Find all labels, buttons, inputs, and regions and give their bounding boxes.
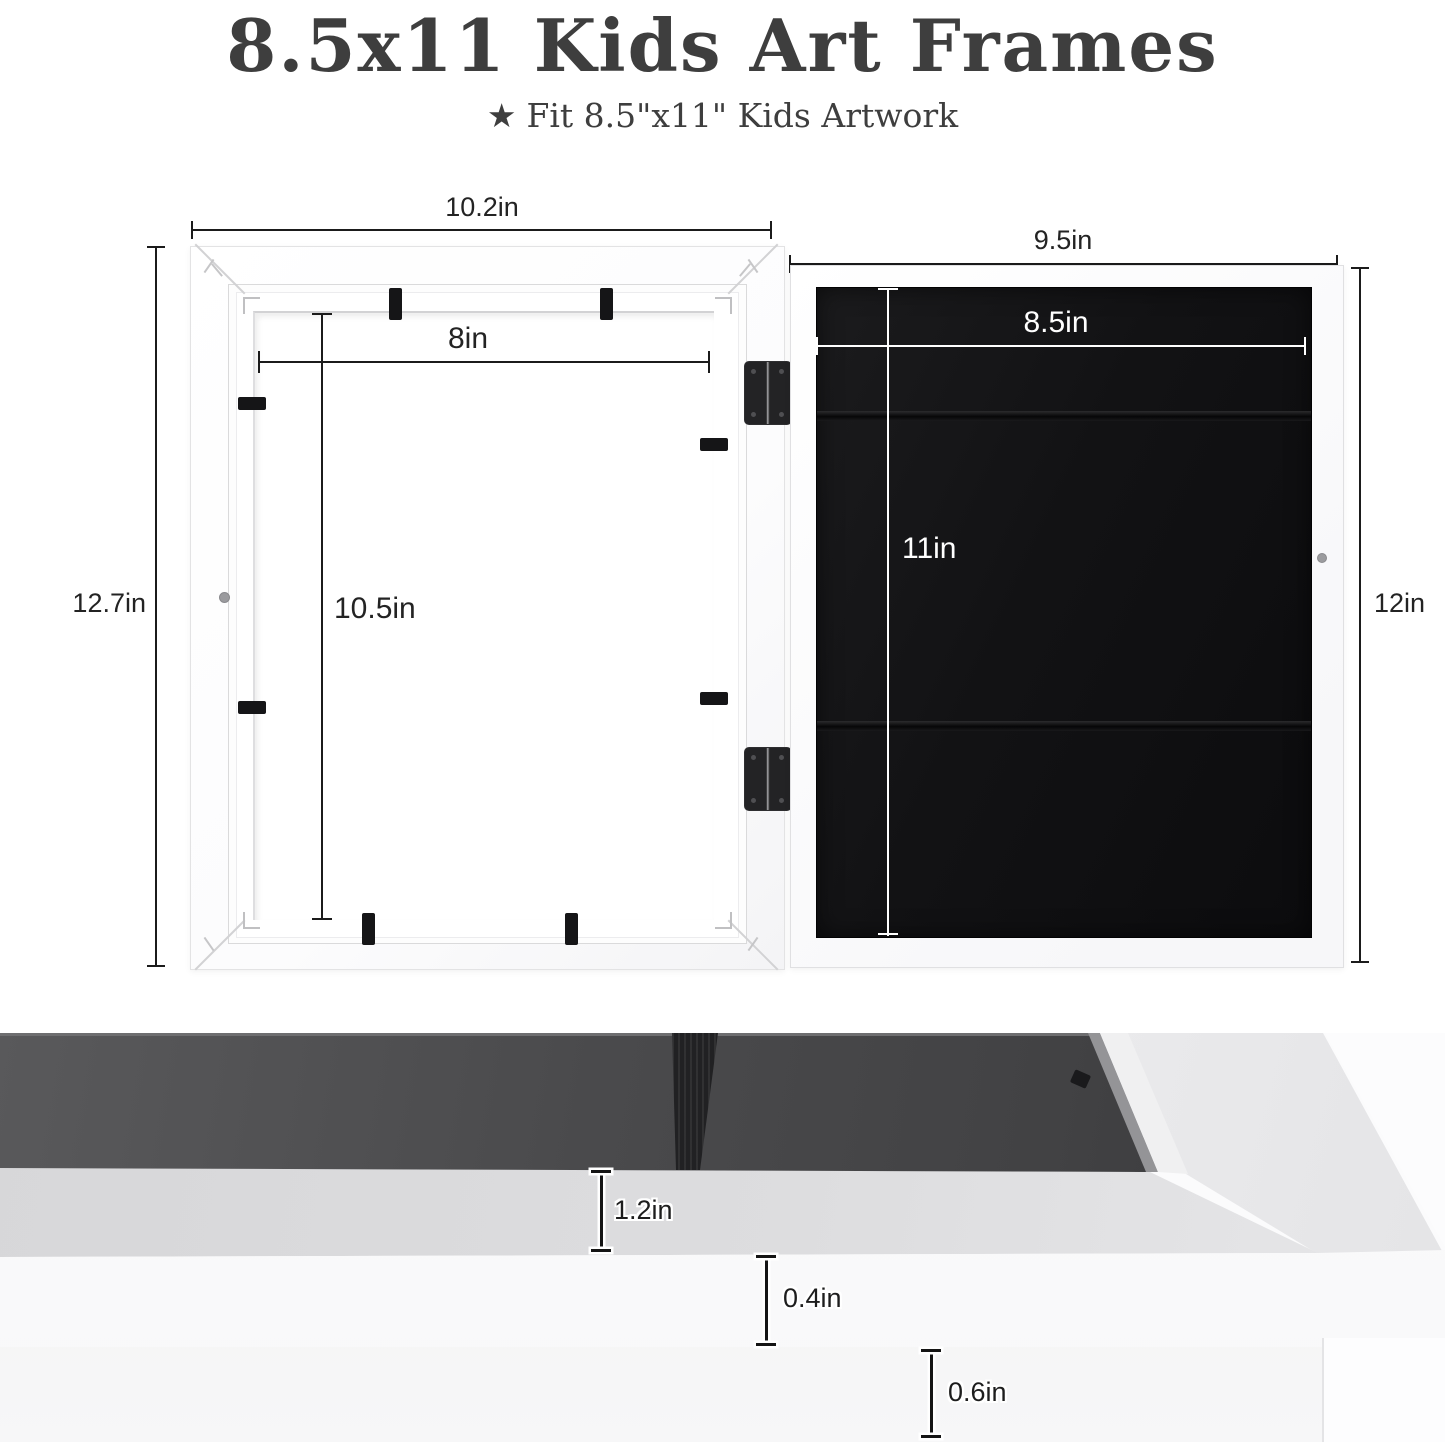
hinge-top — [745, 362, 791, 424]
elastic-band — [817, 411, 1311, 421]
retainer-clip — [238, 701, 266, 714]
retainer-clip — [389, 288, 402, 320]
corner-bracket-mark — [715, 912, 732, 929]
dim-line-back-art-height — [887, 288, 889, 936]
dim-tick — [921, 1435, 941, 1438]
retainer-clip — [565, 913, 578, 945]
dim-line-profile-edge — [930, 1351, 933, 1437]
dim-label-back-outer-height: 12in — [1374, 588, 1425, 619]
corner-bracket-mark — [715, 297, 732, 314]
retainer-clip — [238, 397, 266, 410]
hinge-screw — [779, 755, 784, 760]
corner-bracket-mark — [243, 912, 260, 929]
dim-tick — [921, 1349, 941, 1352]
dim-tick — [147, 246, 165, 248]
hinge-screw — [779, 798, 784, 803]
dim-tick — [816, 337, 818, 355]
profile-photo: 1.2in 0.4in 0.6in — [0, 1033, 1445, 1442]
dim-tick — [591, 1170, 611, 1173]
corner-bracket-mark — [243, 297, 260, 314]
dim-tick — [147, 965, 165, 967]
dim-label-front-opening-width: 8in — [408, 322, 528, 356]
dim-tick — [878, 933, 898, 935]
hinge-pin — [766, 362, 770, 424]
dim-tick — [191, 221, 193, 239]
dim-label-back-outer-width: 9.5in — [993, 225, 1133, 256]
dim-tick — [1304, 337, 1306, 355]
dim-line-front-outer-height — [155, 246, 157, 967]
dim-line-front-opening-height — [321, 313, 323, 920]
dim-tick — [770, 221, 772, 239]
dim-tick — [312, 918, 332, 920]
hinge-pin — [766, 748, 770, 810]
dim-label-profile-depth: 1.2in — [614, 1195, 673, 1226]
hinge-bottom — [745, 748, 791, 810]
dim-label-back-art-height: 11in — [902, 532, 957, 566]
dim-label-front-outer-height: 12.7in — [42, 588, 146, 619]
screw-hole — [219, 592, 230, 603]
dim-tick — [756, 1343, 776, 1346]
page-title: 8.5x11 Kids Art Frames — [0, 0, 1445, 92]
dim-line-back-art-width — [816, 345, 1306, 347]
back-frame-backing — [816, 287, 1312, 938]
dim-tick — [1351, 961, 1369, 963]
dim-line-front-opening-width — [258, 361, 710, 363]
screw-hole — [1317, 553, 1327, 563]
dim-tick — [312, 313, 332, 315]
dim-label-front-opening-height: 10.5in — [334, 592, 416, 626]
dim-line-profile-face — [765, 1257, 768, 1345]
dim-label-profile-edge: 0.6in — [948, 1377, 1007, 1408]
dim-line-profile-depth — [600, 1172, 603, 1251]
dim-tick — [258, 351, 260, 373]
retainer-clip — [362, 913, 375, 945]
retainer-clip — [700, 692, 728, 705]
star-icon: ★ — [487, 96, 517, 135]
retainer-clip — [700, 438, 728, 451]
dim-tick — [756, 1255, 776, 1258]
hinge-screw — [751, 369, 756, 374]
elastic-band — [817, 721, 1311, 731]
hinge-screw — [779, 412, 784, 417]
subtitle-text: Fit 8.5"x11" Kids Artwork — [526, 96, 958, 135]
dim-tick — [1351, 267, 1369, 269]
dim-label-front-outer-width: 10.2in — [412, 192, 552, 223]
retainer-clip — [600, 288, 613, 320]
hinge-screw — [779, 369, 784, 374]
dim-line-back-outer-height — [1359, 267, 1361, 963]
page-subtitle: ★Fit 8.5"x11" Kids Artwork — [0, 96, 1445, 136]
product-dimension-diagram: 8.5x11 Kids Art Frames ★Fit 8.5"x11" Kid… — [0, 0, 1445, 1442]
dim-label-back-art-width: 8.5in — [996, 306, 1116, 340]
hinge-screw — [751, 412, 756, 417]
dim-tick — [591, 1249, 611, 1252]
hinge-screw — [751, 798, 756, 803]
dim-label-profile-face: 0.4in — [783, 1283, 842, 1314]
dim-line-front-outer-width — [191, 229, 772, 231]
dim-tick — [708, 351, 710, 373]
hinge-screw — [751, 755, 756, 760]
photo-background-lower-right — [1322, 1338, 1445, 1442]
dim-tick — [878, 288, 898, 290]
